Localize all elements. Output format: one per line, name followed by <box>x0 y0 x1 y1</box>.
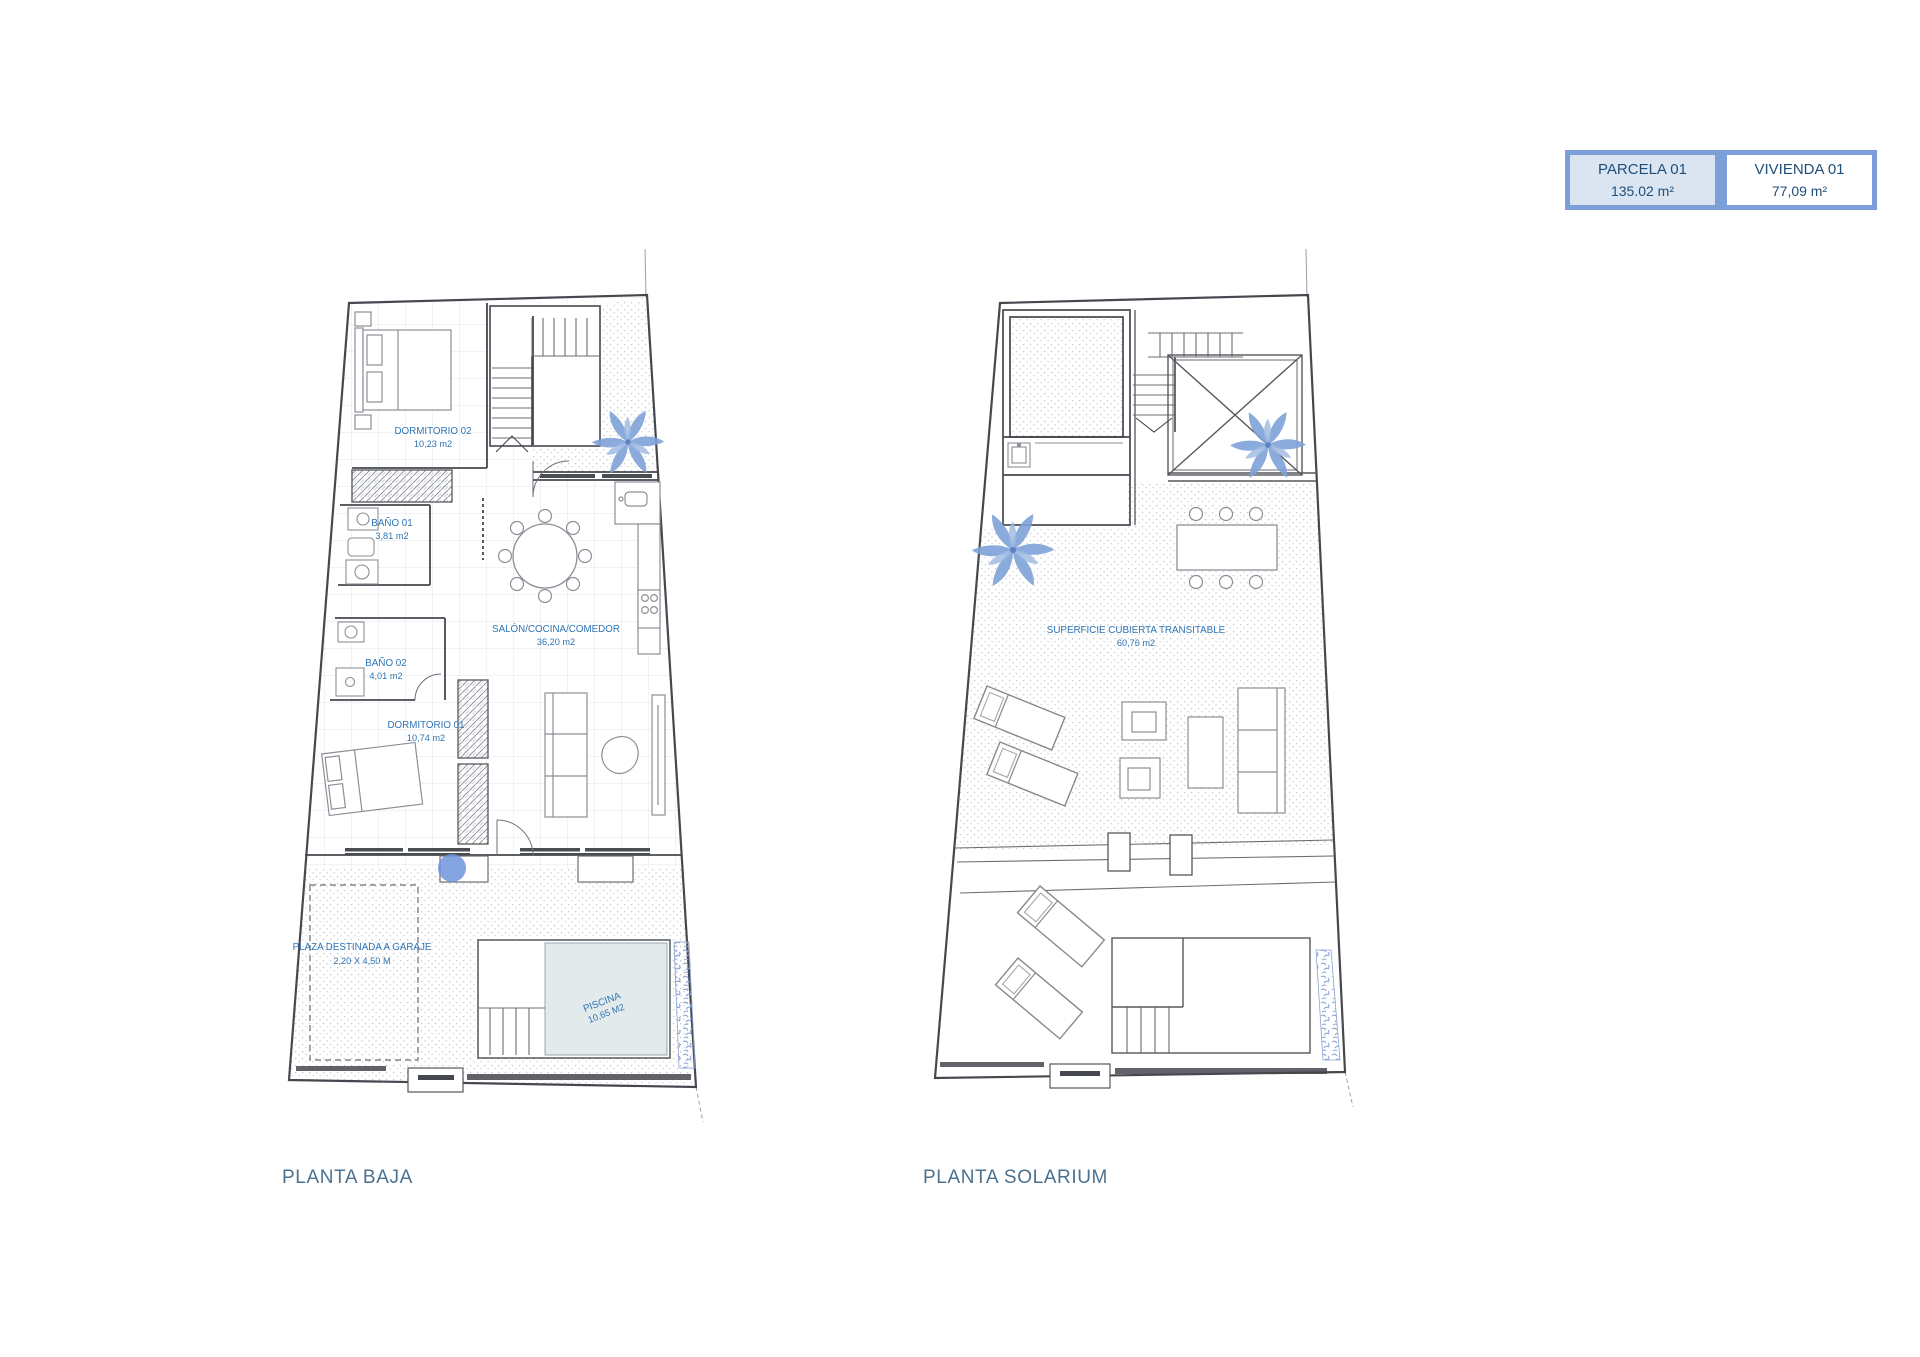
label-garaje: PLAZA DESTINADA A GARAJE <box>293 942 432 953</box>
summer-kitchen-sink <box>1008 443 1123 467</box>
svg-text:36,20 m2: 36,20 m2 <box>537 637 575 647</box>
floorplan-sheet: PARCELA 01 135.02 m² VIVIENDA 01 77,09 m… <box>0 0 1920 1357</box>
plot-boundary-dash <box>1345 1072 1353 1107</box>
label-dormitorio01: DORMITORIO 01 <box>387 720 464 731</box>
svg-text:10,23 m2: 10,23 m2 <box>414 439 452 449</box>
planta-solarium-title: PLANTA SOLARIUM <box>923 1167 1108 1189</box>
sofa <box>545 693 587 817</box>
wardrobe <box>458 680 488 758</box>
dining-table-round <box>499 510 592 603</box>
plot-boundary-dash <box>696 1087 703 1122</box>
sun-lounger <box>1018 886 1105 967</box>
stairwell-area <box>490 306 600 446</box>
tree-icon <box>438 854 466 882</box>
planter <box>1170 835 1192 875</box>
svg-text:60,76 m2: 60,76 m2 <box>1117 638 1155 648</box>
legend-vivienda-cell: VIVIENDA 01 77,09 m² <box>1727 155 1872 205</box>
vegetation-strip <box>1316 950 1340 1060</box>
svg-text:10,74 m2: 10,74 m2 <box>407 733 445 743</box>
parcela-area: 135.02 m² <box>1611 181 1674 201</box>
legend-box: PARCELA 01 135.02 m² VIVIENDA 01 77,09 m… <box>1565 150 1877 210</box>
legend-parcela-cell: PARCELA 01 135.02 m² <box>1570 155 1715 205</box>
svg-text:4,01 m2: 4,01 m2 <box>369 671 402 681</box>
vivienda-area: 77,09 m² <box>1772 181 1827 201</box>
bed-dormitorio01 <box>322 742 423 815</box>
plot-boundary-tick <box>1306 249 1307 297</box>
planta-solarium-plan: SUPERFICIE CUBIERTA TRANSITABLE 60,76 m2 <box>935 249 1353 1107</box>
porch-step <box>578 856 633 882</box>
planta-baja-title: PLANTA BAJA <box>282 1167 413 1189</box>
pool <box>478 940 670 1058</box>
wardrobe <box>352 470 452 502</box>
wardrobe <box>458 764 488 844</box>
svg-text:2,20 X 4,50 M: 2,20 X 4,50 M <box>333 956 390 966</box>
planta-baja-plan: DORMITORIO 02 10,23 m2 BAÑO 01 3,81 m2 B… <box>289 249 703 1122</box>
label-bano02: BAÑO 02 <box>365 658 406 669</box>
tv-bench <box>652 695 665 815</box>
pool-below <box>1112 938 1310 1053</box>
planter <box>1108 833 1130 871</box>
label-bano01: BAÑO 01 <box>371 518 412 529</box>
label-superficie: SUPERFICIE CUBIERTA TRANSITABLE <box>1047 625 1226 636</box>
svg-text:3,81 m2: 3,81 m2 <box>375 531 408 541</box>
stairs <box>1133 333 1243 432</box>
label-salon: SALÓN/COCINA/COMEDOR <box>492 624 620 635</box>
plot-boundary-tick <box>645 249 646 297</box>
pergola <box>1168 355 1316 481</box>
roof-section <box>1010 317 1123 437</box>
coffee-table <box>602 737 638 774</box>
label-dormitorio02: DORMITORIO 02 <box>394 426 471 437</box>
outdoor-sofa <box>1238 688 1285 813</box>
parcela-label: PARCELA 01 <box>1598 159 1687 181</box>
floorplans-canvas: DORMITORIO 02 10,23 m2 BAÑO 01 3,81 m2 B… <box>180 225 1440 1145</box>
sun-lounger <box>996 958 1083 1039</box>
vivienda-label: VIVIENDA 01 <box>1754 159 1844 181</box>
